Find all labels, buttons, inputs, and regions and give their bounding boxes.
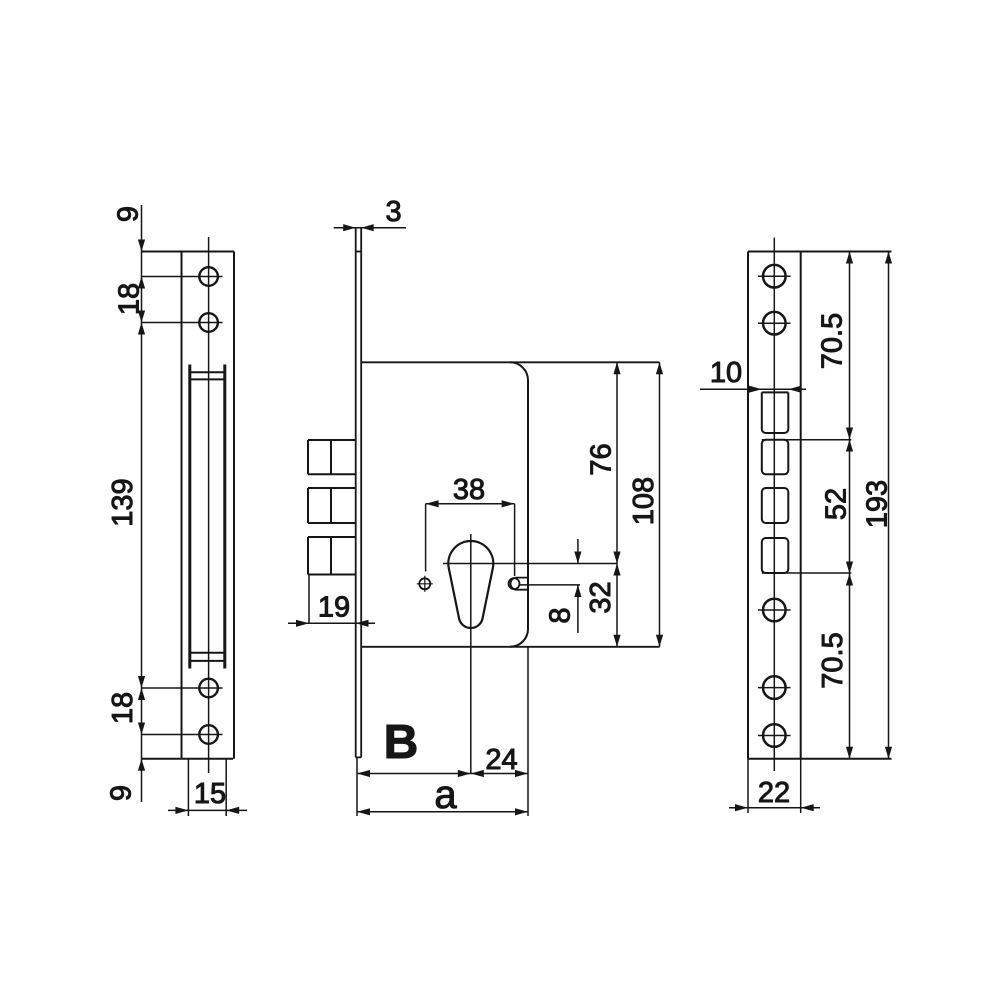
svg-text:18: 18 <box>114 283 146 315</box>
svg-text:9: 9 <box>106 785 138 801</box>
svg-text:52: 52 <box>821 488 853 520</box>
svg-text:193: 193 <box>862 480 894 528</box>
svg-text:108: 108 <box>628 477 660 525</box>
svg-text:a: a <box>434 773 457 817</box>
svg-text:38: 38 <box>453 474 485 506</box>
svg-text:22: 22 <box>758 777 790 809</box>
svg-text:9: 9 <box>113 206 145 222</box>
svg-text:139: 139 <box>107 478 139 526</box>
svg-text:24: 24 <box>485 744 517 776</box>
svg-text:10: 10 <box>710 357 742 389</box>
svg-text:76: 76 <box>586 443 618 475</box>
svg-text:8: 8 <box>545 607 577 623</box>
svg-text:B: B <box>384 716 419 769</box>
svg-text:15: 15 <box>194 778 226 810</box>
svg-text:19: 19 <box>318 592 350 624</box>
svg-text:70.5: 70.5 <box>817 632 849 688</box>
svg-text:3: 3 <box>386 196 402 228</box>
svg-text:18: 18 <box>107 692 139 724</box>
svg-text:32: 32 <box>585 581 617 613</box>
svg-text:70.5: 70.5 <box>817 313 849 369</box>
